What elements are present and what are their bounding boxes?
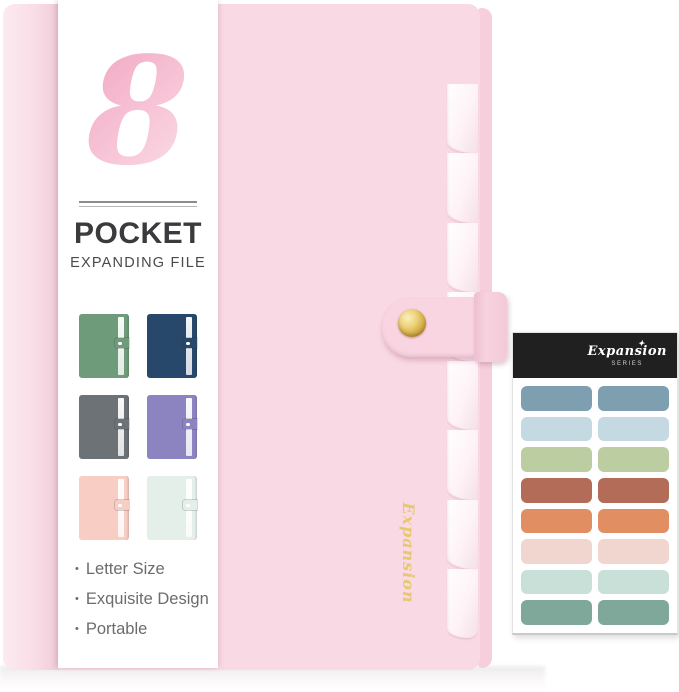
pocket-tab [447, 223, 478, 292]
series-label: SERIES [611, 361, 643, 367]
label-sticker [521, 386, 592, 411]
feature-list: • Letter Size • Exquisite Design • Porta… [75, 554, 218, 644]
sticker-sheet-header: Expansion ✦ SERIES [513, 333, 677, 378]
feature-label: Portable [86, 614, 147, 644]
panel-subtitle: EXPANDING FILE [58, 256, 218, 271]
pocket-tabs [447, 84, 478, 638]
pocket-tab [447, 430, 478, 499]
closure-strap [381, 297, 478, 357]
color-swatch-green [79, 314, 129, 378]
color-swatch-navy [147, 314, 197, 378]
label-sticker [521, 539, 592, 564]
label-sticker [521, 600, 592, 625]
feature-item: • Portable [75, 614, 218, 644]
mini-strap [115, 500, 129, 510]
info-panel: 8 POCKET EXPANDING FILE [58, 0, 218, 668]
mini-strap [183, 338, 197, 348]
color-swatch-mint [147, 476, 197, 540]
label-sticker [598, 447, 669, 472]
sticker-grid [513, 378, 677, 633]
bullet-icon: • [75, 584, 79, 614]
label-sticker [598, 570, 669, 595]
label-sticker [598, 539, 669, 564]
label-sticker [521, 417, 592, 442]
feature-item: • Exquisite Design [75, 584, 218, 614]
folder-spine [3, 4, 59, 670]
color-swatch-blush [79, 476, 129, 540]
pocket-count: 8 [58, 30, 218, 193]
label-sticker [521, 447, 592, 472]
feature-label: Letter Size [86, 554, 165, 584]
color-variant-grid [79, 314, 197, 540]
pocket-tab [447, 361, 478, 430]
bullet-icon: • [75, 554, 79, 584]
color-swatch-gray [79, 395, 129, 459]
brand-script-sheet: Expansion ✦ [587, 345, 667, 358]
bullet-icon: • [75, 614, 79, 644]
brand-script-text: Expansion [587, 344, 667, 359]
mini-strap [115, 338, 129, 348]
snap-button [398, 309, 426, 337]
pocket-tab [447, 569, 478, 638]
label-sticker [598, 509, 669, 534]
mini-strap [115, 419, 129, 429]
feature-label: Exquisite Design [86, 584, 209, 614]
label-sticker [598, 417, 669, 442]
label-sticker [598, 600, 669, 625]
label-sticker [598, 478, 669, 503]
pocket-tab [447, 84, 478, 153]
label-sticker [598, 386, 669, 411]
label-sticker [521, 570, 592, 595]
label-sticker [521, 478, 592, 503]
pocket-tab [447, 500, 478, 569]
divider-rule [79, 201, 197, 207]
panel-title: POCKET [58, 219, 218, 249]
label-sticker [521, 509, 592, 534]
color-swatch-purple [147, 395, 197, 459]
pocket-tab [447, 153, 478, 222]
mini-strap [183, 500, 197, 510]
brand-script-cover: Expansion [397, 493, 419, 613]
label-sticker-sheet: Expansion ✦ SERIES [512, 332, 678, 635]
feature-item: • Letter Size [75, 554, 218, 584]
mini-strap [183, 419, 197, 429]
sparkle-icon: ✦ [638, 339, 645, 347]
closure-strap-fold [474, 292, 507, 362]
